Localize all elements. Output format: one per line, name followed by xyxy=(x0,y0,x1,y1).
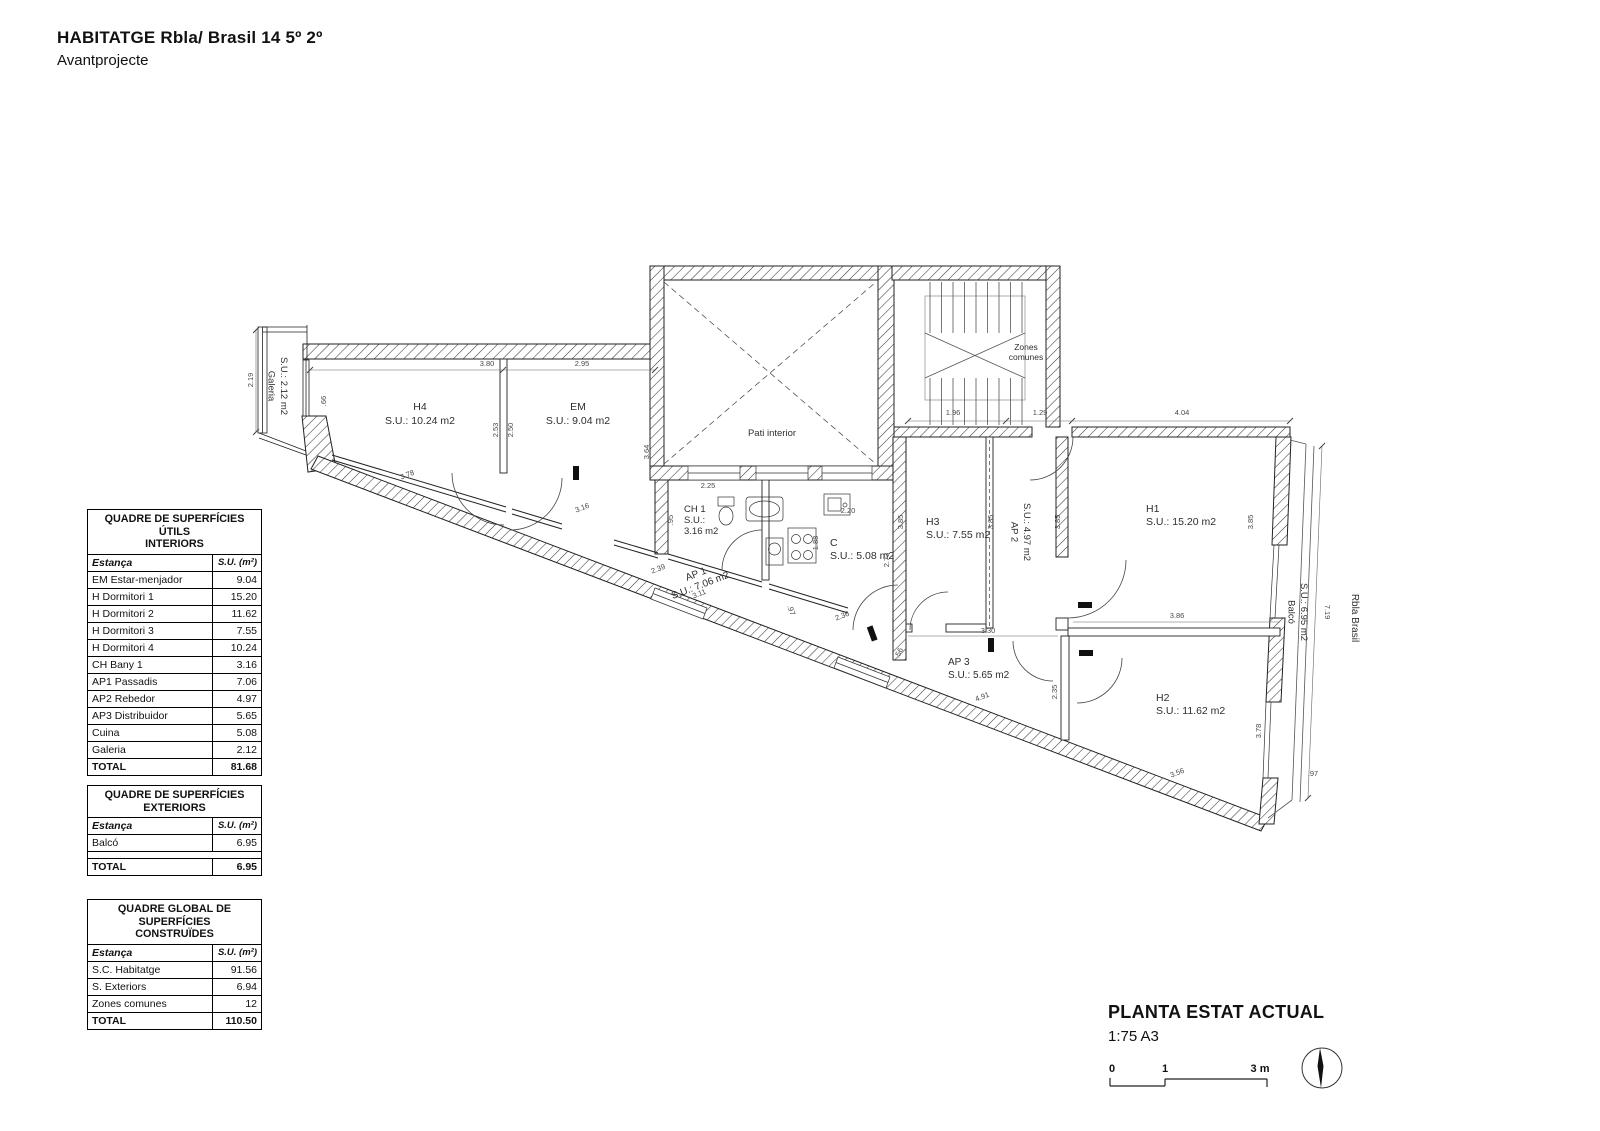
dimension-label: .97 xyxy=(1308,769,1318,778)
room-label-ap-3: AP 3S.U.: 5.65 m2 xyxy=(948,657,1010,681)
dimension-label: 3.16 xyxy=(574,501,591,515)
scale-bar-line xyxy=(1110,1078,1267,1087)
sheet: { "header": { "title": "HABITATGE Rbla/ … xyxy=(0,0,1600,1131)
dimension-label: 3.80 xyxy=(480,359,495,368)
drawing-scale: 1:75 A3 xyxy=(1108,1028,1159,1045)
dimension-label: 7.19 xyxy=(1323,605,1332,620)
room-label-h1: H1S.U.: 15.20 m2 xyxy=(1146,503,1216,528)
north-arrow-needle xyxy=(1318,1048,1324,1088)
dimension-label: 2.19 xyxy=(246,373,255,388)
dimension-ticks xyxy=(253,327,1325,801)
drawing-title: PLANTA ESTAT ACTUAL xyxy=(1108,1002,1324,1023)
dimension-label: 2.36 xyxy=(834,609,851,623)
dimension-label: .95 xyxy=(666,515,675,525)
dimension-label: 1.96 xyxy=(946,408,961,417)
dimension-label: 2.25 xyxy=(701,481,716,490)
dimension-label: 3.64 xyxy=(642,445,651,460)
room-label-h2: H2S.U.: 11.62 m2 xyxy=(1156,692,1225,717)
room-label-galeria: S.U.: 2.12 m2Galeria xyxy=(266,357,290,415)
room-label-pati-interior: Pati interior xyxy=(748,428,796,439)
dimension-label: 2.73 xyxy=(882,553,891,568)
dimension-label: 4.04 xyxy=(1175,408,1190,417)
room-label-ch-1: CH 1S.U.:3.16 m2 xyxy=(684,504,718,537)
room-label-h4: H4S.U.: 10.24 m2 xyxy=(385,401,455,427)
room-label-ap-2: S.U.: 4.97 m2AP 2 xyxy=(1009,503,1033,561)
room-label-em: EMS.U.: 9.04 m2 xyxy=(546,401,610,427)
dimension-label: 2.35 xyxy=(1050,685,1059,700)
dimension-label: 3.78 xyxy=(1254,724,1263,739)
scale-zero: 0 xyxy=(1109,1063,1115,1075)
dimension-label: 4.91 xyxy=(974,690,991,704)
floor-plan-canvas: S.U.: 2.12 m2GaleriaH4S.U.: 10.24 m2EMS.… xyxy=(0,0,1600,1131)
dimension-label: 2.53 xyxy=(491,423,500,438)
dimension-label: 3.85 xyxy=(1053,515,1062,530)
scale-one: 1 xyxy=(1162,1063,1168,1075)
room-label-h3: H3S.U.: 7.55 m2 xyxy=(926,516,990,541)
dimension-label: 3.56 xyxy=(1169,766,1186,780)
room-label-balc: S.U.: 6.95 m2Balcó xyxy=(1286,583,1310,641)
dimension-label: 3.85 xyxy=(896,515,905,530)
dimension-label: 1.88 xyxy=(811,536,820,551)
room-label-zones: Zonescomunes xyxy=(1009,342,1044,362)
dimension-label: 2.20 xyxy=(841,506,856,515)
dimension-label: .66 xyxy=(319,396,328,406)
scale-bar: 0 1 3 m xyxy=(1109,1063,1270,1087)
dimension-label: 2.39 xyxy=(650,562,667,576)
plan-text-layer: S.U.: 2.12 m2GaleriaH4S.U.: 10.24 m2EMS.… xyxy=(246,342,1360,779)
scale-three: 3 m xyxy=(1251,1063,1270,1075)
dimension-label: .97 xyxy=(785,604,797,617)
dimension-label: 3.85 xyxy=(986,515,995,530)
dimension-label: 2.50 xyxy=(506,423,515,438)
dimension-label: 1.29 xyxy=(1033,408,1048,417)
dimension-label: 3.86 xyxy=(1170,611,1185,620)
dimension-label: 3.30 xyxy=(981,626,996,635)
dimension-label: 3.85 xyxy=(1246,515,1255,530)
dimension-label: 2.95 xyxy=(575,359,590,368)
north-arrow xyxy=(1302,1048,1342,1088)
room-label-rbla-brasil: Rbla Brasil xyxy=(1349,594,1360,642)
